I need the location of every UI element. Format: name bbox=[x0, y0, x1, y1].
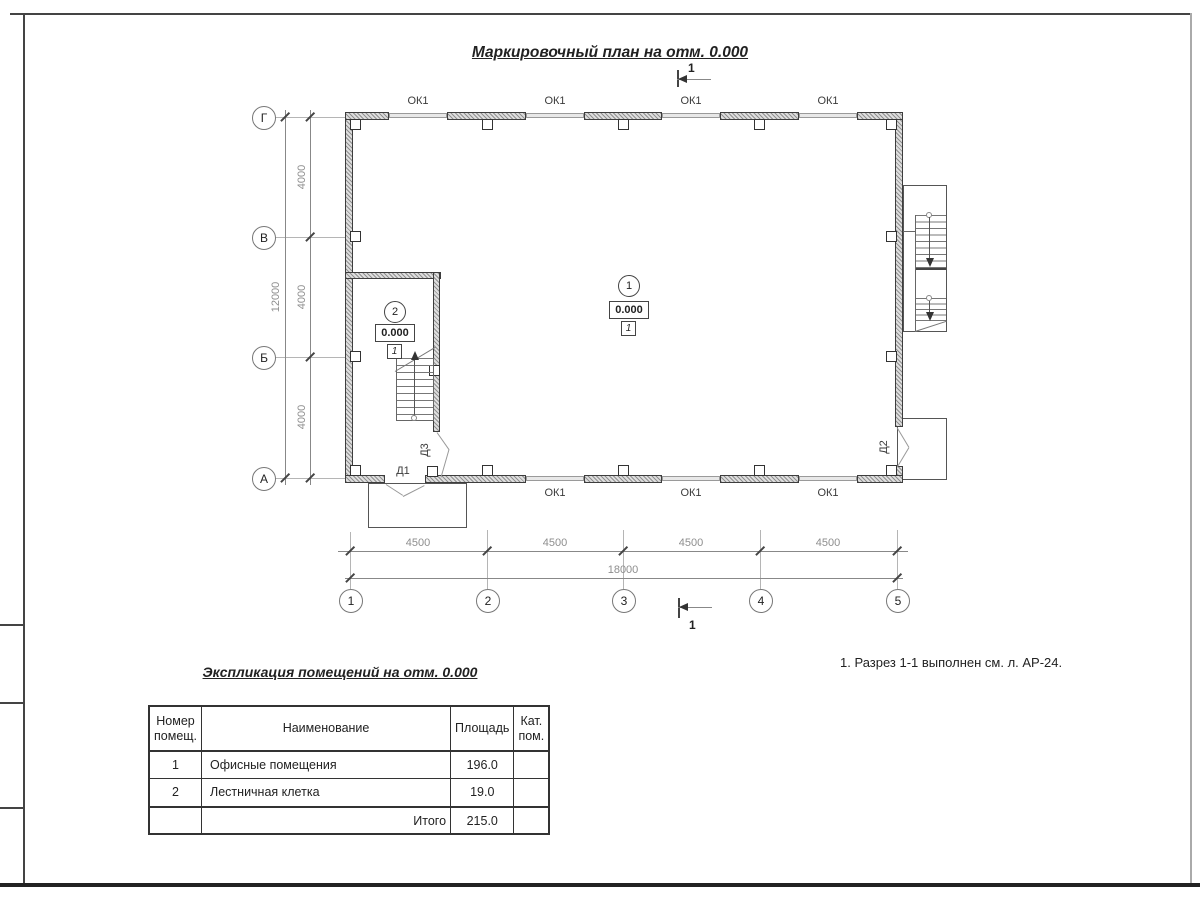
room-elevation-box: 0.000 bbox=[375, 324, 415, 342]
axis-label: В bbox=[260, 231, 268, 245]
column-mark bbox=[754, 119, 765, 130]
axis-bubble-2: 2 bbox=[476, 589, 500, 613]
wall-bottom-pier bbox=[720, 475, 799, 483]
room-elevation-box: 0.000 bbox=[609, 301, 649, 319]
total-value-cell: 215.0 bbox=[451, 807, 514, 834]
total-empty-cell bbox=[149, 807, 202, 834]
stair-down-arrow-icon bbox=[926, 312, 934, 321]
window-ok1 bbox=[799, 476, 857, 481]
dim-value: 4000 bbox=[296, 397, 308, 437]
dimension-line bbox=[310, 110, 311, 485]
room-name-cell: Лестничная клетка bbox=[202, 778, 451, 807]
room-number-badge: 2 bbox=[384, 301, 406, 323]
axis-bubble-g: Г bbox=[252, 106, 276, 130]
col-header-number: Номер помещ. bbox=[149, 706, 202, 751]
axis-bubble-3: 3 bbox=[612, 589, 636, 613]
table-title: Экспликация помещений на отм. 0.000 bbox=[160, 664, 520, 680]
extension-line bbox=[623, 530, 624, 589]
stair-arrow-line bbox=[414, 357, 415, 419]
door-label-d2: Д2 bbox=[878, 435, 890, 459]
table-row: 1 Офисные помещения 196.0 bbox=[149, 751, 549, 778]
room-number-cell: 1 bbox=[149, 751, 202, 778]
column-mark bbox=[886, 231, 897, 242]
stair-landing-line bbox=[916, 268, 946, 270]
axis-bubble-v: В bbox=[252, 226, 276, 250]
window-label: ОК1 bbox=[676, 487, 706, 499]
axis-label: 4 bbox=[758, 594, 765, 608]
window-ok1 bbox=[662, 113, 720, 118]
frame-right bbox=[1190, 13, 1192, 884]
window-ok1 bbox=[526, 113, 584, 118]
wall-bottom-pier bbox=[857, 475, 903, 483]
window-label: ОК1 bbox=[676, 95, 706, 107]
stair-landing-edge bbox=[903, 231, 915, 232]
wall-bottom-pier bbox=[345, 475, 385, 483]
frame-top bbox=[10, 13, 1191, 15]
drawing-sheet: Маркировочный план на отм. 0.000 1 1 bbox=[0, 0, 1200, 900]
window-label: ОК1 bbox=[540, 95, 570, 107]
wall-stairroom-right bbox=[433, 272, 440, 432]
axis-label: А bbox=[260, 472, 268, 486]
axis-bubble-1: 1 bbox=[339, 589, 363, 613]
window-label: ОК1 bbox=[403, 95, 433, 107]
extension-line bbox=[350, 532, 351, 589]
wall-right bbox=[895, 112, 903, 427]
column-mark bbox=[886, 351, 897, 362]
column-mark bbox=[350, 351, 361, 362]
stair-start-dot bbox=[411, 415, 417, 421]
col-header-name: Наименование bbox=[202, 706, 451, 751]
section-arrow-icon bbox=[678, 75, 687, 83]
frame-stub bbox=[0, 624, 23, 626]
window-label: ОК1 bbox=[540, 487, 570, 499]
section-number: 1 bbox=[688, 61, 695, 75]
column-mark bbox=[482, 465, 493, 476]
wall-bottom-pier bbox=[584, 475, 662, 483]
column-mark bbox=[482, 119, 493, 130]
room-name-cell: Офисные помещения bbox=[202, 751, 451, 778]
column-mark bbox=[350, 465, 361, 476]
stair-arrow-line bbox=[929, 217, 930, 259]
column-mark bbox=[427, 466, 438, 477]
axis-bubble-a: А bbox=[252, 467, 276, 491]
entrance-porch bbox=[368, 483, 467, 528]
extension-line bbox=[897, 530, 898, 589]
room-number-cell: 2 bbox=[149, 778, 202, 807]
table-total-row: Итого 215.0 bbox=[149, 807, 549, 834]
window-label: ОК1 bbox=[813, 487, 843, 499]
door-d3-leaf bbox=[437, 432, 450, 450]
frame-stub bbox=[0, 807, 23, 809]
axis-label: Г bbox=[261, 111, 268, 125]
axis-bubble-b: Б bbox=[252, 346, 276, 370]
column-mark bbox=[754, 465, 765, 476]
column-mark bbox=[618, 465, 629, 476]
window-label: ОК1 bbox=[813, 95, 843, 107]
dim-total: 12000 bbox=[270, 272, 282, 322]
extension-line bbox=[487, 530, 488, 589]
room-category-box: 1 bbox=[621, 321, 636, 336]
frame-bottom bbox=[0, 883, 1200, 887]
window-ok1 bbox=[526, 476, 584, 481]
section-arrow-icon bbox=[679, 603, 688, 611]
room-number-badge: 1 bbox=[618, 275, 640, 297]
dim-value: 4500 bbox=[671, 537, 711, 549]
axis-bubble-5: 5 bbox=[886, 589, 910, 613]
wall-stairroom-top bbox=[345, 272, 441, 279]
section-number: 1 bbox=[689, 618, 696, 632]
wall-left bbox=[345, 112, 353, 483]
frame-stub bbox=[0, 702, 23, 704]
dim-value: 4000 bbox=[296, 277, 308, 317]
window-ok1 bbox=[799, 113, 857, 118]
door-label-d3: Д3 bbox=[419, 438, 431, 462]
axis-label: 5 bbox=[895, 594, 902, 608]
axis-label: 3 bbox=[621, 594, 628, 608]
room-cat-cell bbox=[514, 751, 549, 778]
room-area-cell: 196.0 bbox=[451, 751, 514, 778]
dim-value: 4000 bbox=[296, 157, 308, 197]
drawing-note: 1. Разрез 1-1 выполнен см. л. АР-24. bbox=[840, 655, 1062, 670]
door-d3-leaf bbox=[441, 449, 450, 477]
axis-label: 2 bbox=[485, 594, 492, 608]
column-mark bbox=[350, 231, 361, 242]
room-area-cell: 19.0 bbox=[451, 778, 514, 807]
room-cat-cell bbox=[514, 778, 549, 807]
explication-table: Номер помещ. Наименование Площадь Кат. п… bbox=[148, 705, 550, 835]
dim-value: 4500 bbox=[535, 537, 575, 549]
stair-down-arrow-icon bbox=[926, 258, 934, 267]
axis-bubble-4: 4 bbox=[749, 589, 773, 613]
dim-value: 4500 bbox=[398, 537, 438, 549]
axis-label: Б bbox=[260, 351, 268, 365]
dim-total: 18000 bbox=[598, 564, 648, 576]
dimension-line bbox=[285, 110, 286, 485]
axis-label: 1 bbox=[348, 594, 355, 608]
window-ok1 bbox=[662, 476, 720, 481]
dim-value: 4500 bbox=[808, 537, 848, 549]
plan-title: Маркировочный план на отм. 0.000 bbox=[430, 44, 790, 62]
side-porch bbox=[897, 418, 947, 480]
col-header-area: Площадь bbox=[451, 706, 514, 751]
column-mark bbox=[886, 119, 897, 130]
room-category-box: 1 bbox=[387, 344, 402, 359]
column-mark bbox=[618, 119, 629, 130]
extension-line bbox=[760, 530, 761, 589]
window-ok1 bbox=[389, 113, 447, 118]
total-label-cell: Итого bbox=[202, 807, 451, 834]
dimension-line bbox=[345, 578, 903, 579]
stair-up-arrow-icon bbox=[411, 351, 419, 360]
frame-left bbox=[23, 13, 25, 884]
table-row: 2 Лестничная клетка 19.0 bbox=[149, 778, 549, 807]
door-label-d1: Д1 bbox=[391, 465, 415, 477]
col-header-cat: Кат. пом. bbox=[514, 706, 549, 751]
column-mark bbox=[350, 119, 361, 130]
total-cat-cell bbox=[514, 807, 549, 834]
